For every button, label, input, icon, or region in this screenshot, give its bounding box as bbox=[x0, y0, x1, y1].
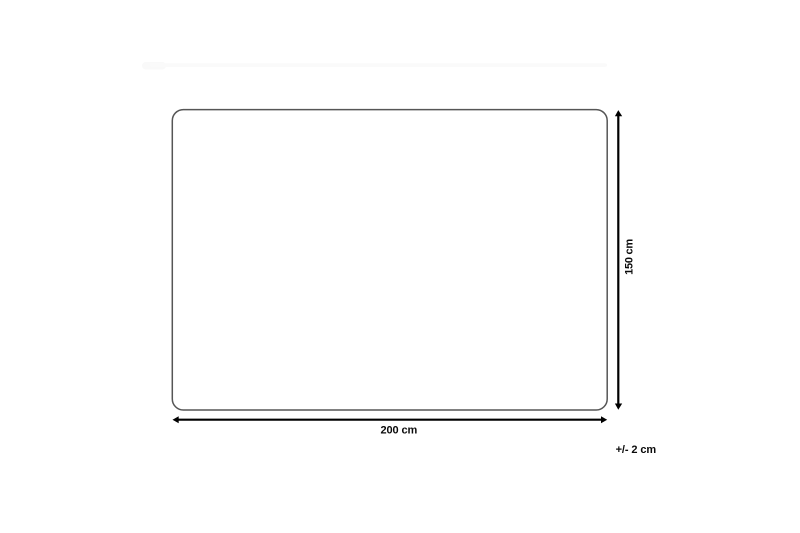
svg-text:200 cm: 200 cm bbox=[381, 425, 418, 437]
svg-text:+/- 2 cm: +/- 2 cm bbox=[616, 444, 657, 456]
svg-text:150 cm: 150 cm bbox=[623, 239, 635, 275]
